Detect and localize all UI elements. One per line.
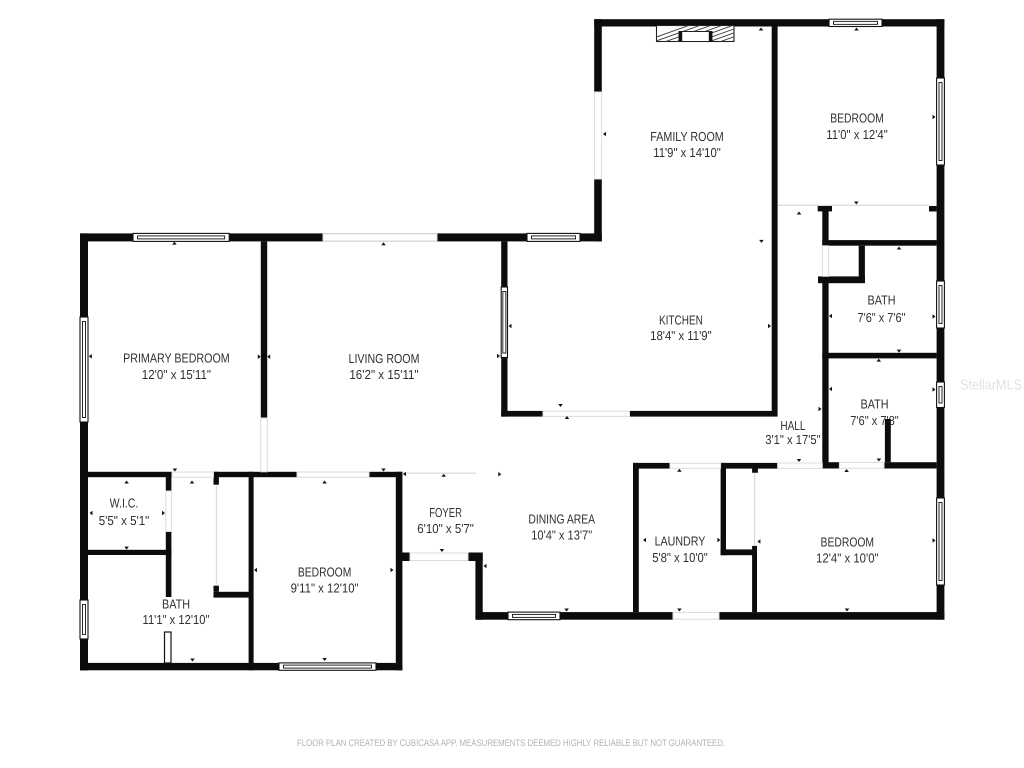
svg-text:StellarMLS: StellarMLS	[960, 377, 1022, 393]
svg-text:6'10" x 5'7": 6'10" x 5'7"	[417, 521, 474, 536]
svg-text:PRIMARY BEDROOM: PRIMARY BEDROOM	[123, 351, 230, 366]
svg-text:BEDROOM: BEDROOM	[298, 565, 352, 580]
svg-text:7'6" x 7'6": 7'6" x 7'6"	[858, 310, 906, 325]
svg-text:5'5" x 5'1": 5'5" x 5'1"	[99, 513, 150, 528]
svg-text:FOYER: FOYER	[429, 505, 462, 520]
svg-text:KITCHEN: KITCHEN	[659, 313, 703, 328]
svg-text:HALL: HALL	[780, 418, 805, 433]
svg-text:BEDROOM: BEDROOM	[830, 110, 884, 125]
svg-text:10'4" x 13'7": 10'4" x 13'7"	[531, 528, 592, 543]
svg-text:9'11" x 12'10": 9'11" x 12'10"	[291, 580, 359, 595]
svg-text:DINING AREA: DINING AREA	[528, 512, 595, 527]
svg-text:12'4" x 10'0": 12'4" x 10'0"	[816, 551, 879, 566]
svg-text:11'0" x 12'4": 11'0" x 12'4"	[826, 127, 888, 142]
svg-text:16'2" x 15'11": 16'2" x 15'11"	[349, 367, 419, 382]
svg-text:11'1" x 12'10": 11'1" x 12'10"	[143, 612, 210, 627]
svg-text:BEDROOM: BEDROOM	[821, 534, 875, 549]
svg-text:3'1" x 17'5": 3'1" x 17'5"	[765, 432, 821, 447]
svg-text:12'0" x 15'11": 12'0" x 15'11"	[142, 367, 212, 382]
svg-text:W.I.C.: W.I.C.	[110, 496, 139, 511]
svg-text:11'9" x 14'10": 11'9" x 14'10"	[653, 145, 721, 160]
svg-text:7'6" x 7'8": 7'6" x 7'8"	[850, 413, 899, 428]
svg-text:BATH: BATH	[868, 293, 896, 308]
svg-text:5'8" x 10'0": 5'8" x 10'0"	[652, 550, 708, 565]
svg-text:FAMILY ROOM: FAMILY ROOM	[650, 129, 723, 144]
svg-text:BATH: BATH	[861, 397, 889, 412]
svg-text:18'4" x 11'9": 18'4" x 11'9"	[650, 328, 712, 343]
svg-text:LIVING ROOM: LIVING ROOM	[349, 351, 420, 366]
svg-text:LAUNDRY: LAUNDRY	[655, 533, 706, 548]
svg-text:FLOOR PLAN CREATED BY CUBICASA: FLOOR PLAN CREATED BY CUBICASA APP. MEAS…	[297, 738, 725, 749]
svg-text:BATH: BATH	[162, 597, 190, 612]
